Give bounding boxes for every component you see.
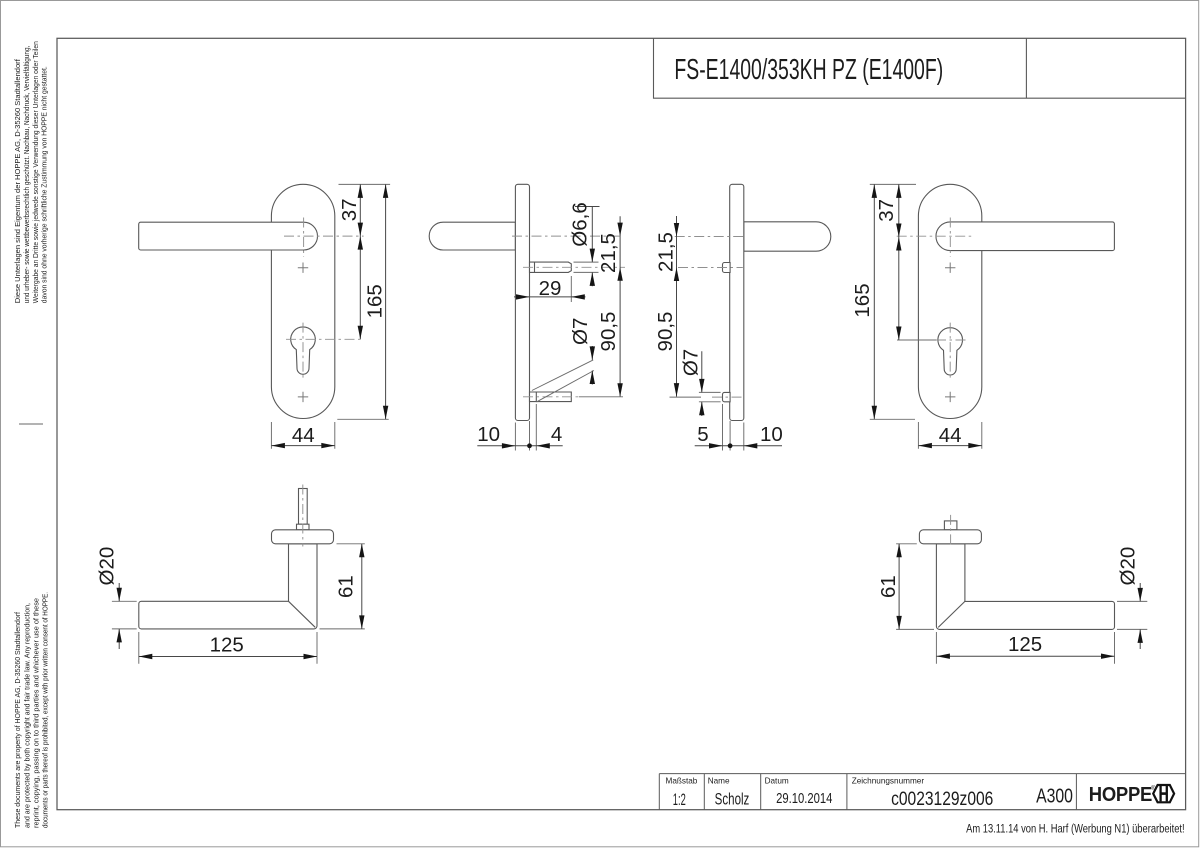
svg-text:1:2: 1:2	[673, 790, 686, 809]
svg-text:und urheber- sowie wettbewerbs: und urheber- sowie wettbewerbsrechtlich …	[23, 46, 31, 304]
svg-text:37: 37	[875, 199, 898, 222]
svg-text:21,5: 21,5	[655, 232, 678, 272]
svg-text:These documents are property o: These documents are property of HOPPE AG…	[14, 612, 22, 828]
svg-text:90,5: 90,5	[597, 312, 620, 352]
svg-text:165: 165	[851, 283, 874, 317]
svg-text:125: 125	[1008, 633, 1042, 656]
svg-text:90,5: 90,5	[654, 312, 677, 352]
svg-text:Am 13.11.14 von H. Harf (Werbu: Am 13.11.14 von H. Harf (Werbung N1) übe…	[966, 823, 1184, 836]
svg-text:Ø20: Ø20	[1117, 547, 1140, 586]
svg-text:21,5: 21,5	[597, 233, 620, 273]
svg-text:Maßstab: Maßstab	[666, 776, 698, 785]
svg-text:FS-E1400/353KH PZ (E1400F): FS-E1400/353KH PZ (E1400F)	[674, 54, 943, 86]
svg-text:c0023129z006: c0023129z006	[891, 787, 993, 809]
svg-text:4: 4	[551, 423, 562, 446]
svg-text:Ø6,6: Ø6,6	[569, 202, 592, 246]
svg-text:Diese Unterlagen sind Eigentum: Diese Unterlagen sind Eigentum der HOPPE…	[14, 59, 22, 303]
svg-text:Scholz: Scholz	[715, 791, 750, 810]
svg-text:61: 61	[334, 575, 357, 598]
svg-text:165: 165	[364, 284, 387, 318]
svg-text:Ø20: Ø20	[96, 547, 119, 586]
svg-text:61: 61	[877, 575, 900, 598]
svg-text:Weitergabe an Dritte sowie jed: Weitergabe an Dritte sowie jedwede sonst…	[32, 41, 40, 303]
svg-text:44: 44	[939, 424, 962, 447]
svg-text:HOPPE: HOPPE	[1089, 783, 1153, 806]
svg-text:44: 44	[292, 424, 315, 447]
svg-text:125: 125	[210, 633, 244, 656]
svg-text:29.10.2014: 29.10.2014	[776, 789, 832, 806]
svg-text:29: 29	[539, 277, 562, 300]
svg-text:A300: A300	[1036, 785, 1073, 807]
svg-text:Datum: Datum	[765, 776, 789, 785]
svg-text:reprint, copying, passing on t: reprint, copying, passing on to third pa…	[33, 598, 41, 828]
svg-text:davon sind ohne vorherige schr: davon sind ohne vorherige schriftliche Z…	[41, 66, 49, 303]
svg-text:documents or parts thereof is: documents or parts thereof is prohibited…	[42, 592, 50, 828]
svg-text:Ø7: Ø7	[680, 349, 703, 376]
svg-text:10: 10	[760, 423, 783, 446]
svg-text:5: 5	[697, 423, 708, 446]
svg-text:and are protected by both copy: and are protected by both copyright and …	[23, 603, 31, 828]
svg-text:Ø7: Ø7	[569, 318, 592, 345]
svg-text:Zeichnungsnummer: Zeichnungsnummer	[852, 777, 925, 786]
svg-text:Name: Name	[708, 776, 730, 785]
svg-text:10: 10	[477, 423, 500, 446]
svg-text:37: 37	[338, 198, 361, 221]
